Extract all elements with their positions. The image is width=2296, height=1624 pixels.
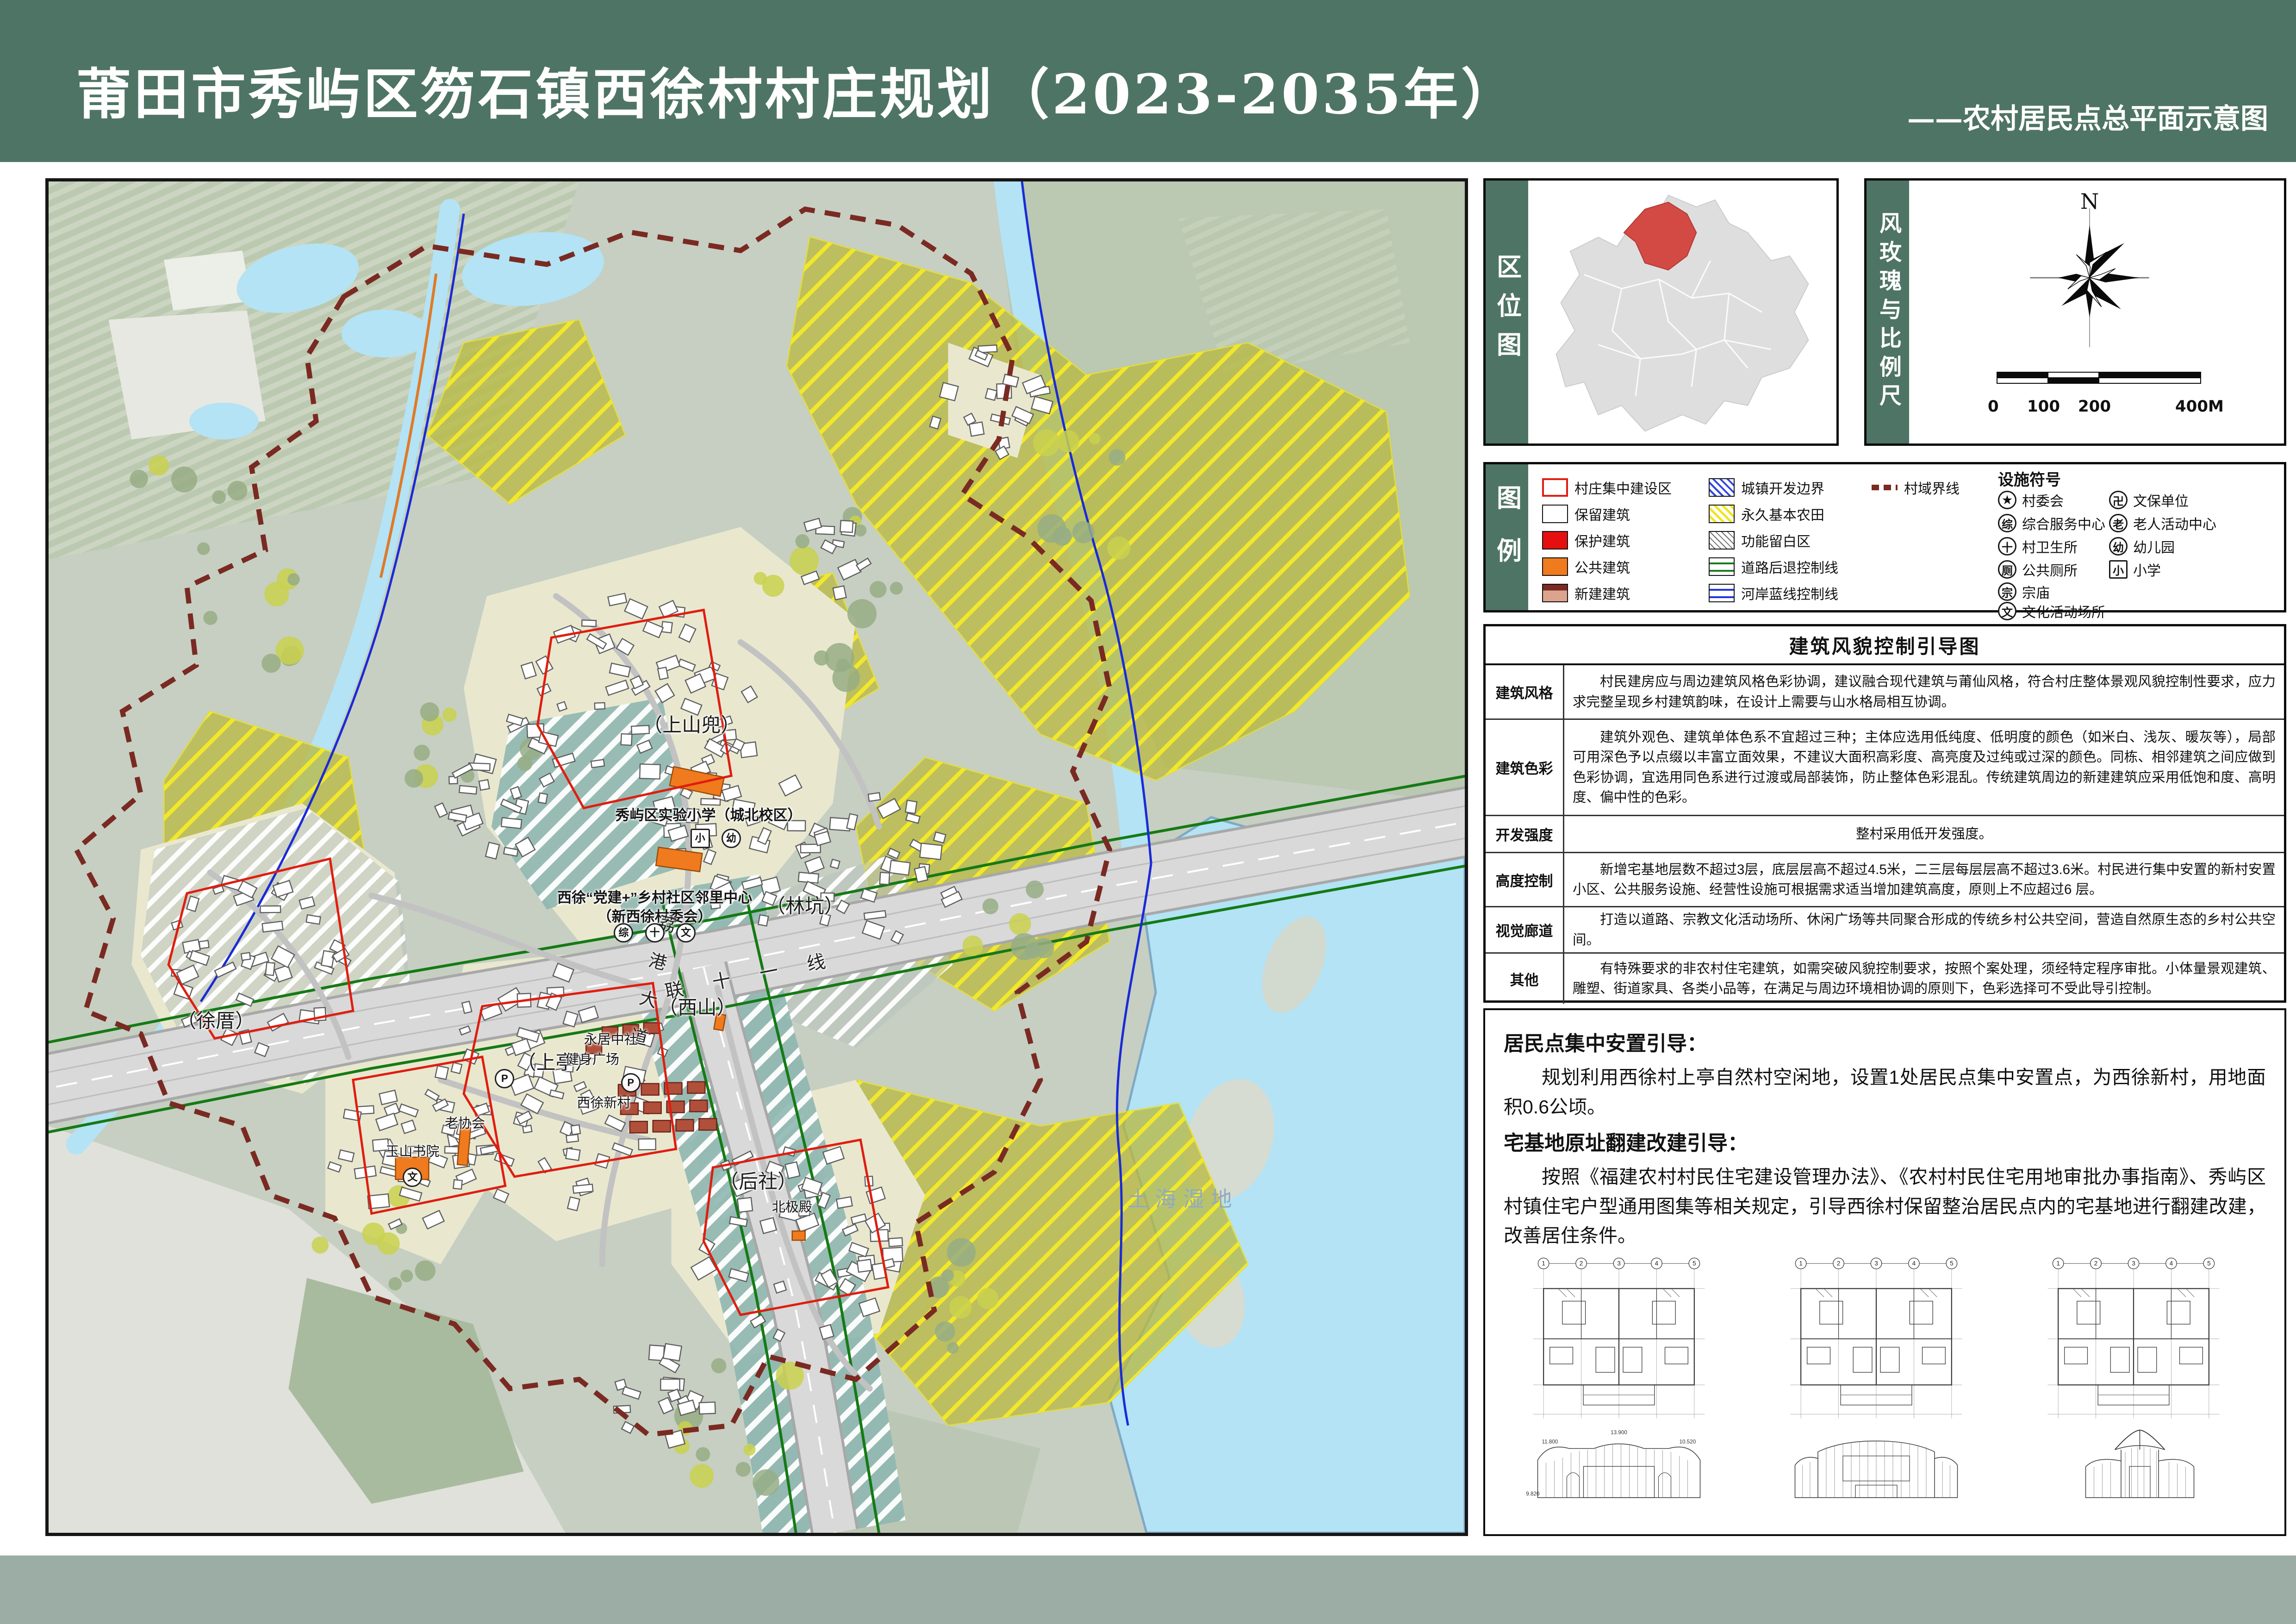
swatch-farmland [1709, 505, 1735, 523]
resettlement-guidance-title: 居民点集中安置引导： [1504, 1027, 2266, 1056]
parking-icon: P [621, 1073, 641, 1093]
legend-side-label: 图例 [1486, 464, 1528, 610]
table-row: 开发强度 整村采用低开发强度。 [1486, 816, 2284, 853]
swatch-new-building [1542, 584, 1568, 602]
service-center-icon: 综 [1998, 514, 2016, 532]
legend-item: 永久基本农田 [1709, 504, 1824, 524]
wind-rose [1997, 208, 2182, 347]
map-label-houshe: （后社） [719, 1166, 797, 1194]
facility-item: 卍文保单位 [2109, 490, 2189, 510]
facility-symbols-title: 设施符号 [1998, 467, 2061, 490]
table-row: 建筑风格 村民建房应与周边建筑风格色彩协调，建议融合现代建筑与莆仙风格，符合村庄… [1486, 665, 2284, 720]
swatch-village-boundary [1872, 485, 1898, 490]
building-style-guide-table: 建筑风貌控制引导图 建筑风格 村民建房应与周边建筑风格色彩协调，建议融合现代建筑… [1483, 624, 2286, 1003]
scale-tick-0: 0 [1988, 397, 1999, 416]
village-clinic-icon: 十 [1998, 537, 2016, 556]
legend-item: 村庄集中建设区 [1542, 477, 1672, 498]
map-label-elderly-association: 老协会 [445, 1112, 485, 1132]
map-label-xixu-new-village: 西徐新村 [577, 1092, 631, 1112]
elevation-drawing [2009, 1427, 2258, 1510]
facility-item: 老老人活动中心 [2109, 513, 2216, 533]
plan-poster: 莆田市秀屿区笏石镇西徐村村庄规划（2023-2035年） ——农村居民点总平面示… [0, 0, 2296, 1624]
culture-icon: 文 [403, 1168, 422, 1187]
house-type-drawings: 1 2 3 4 5 [1494, 1251, 2258, 1524]
location-map-panel: 区位图 [1483, 178, 1839, 446]
rebuild-guidance-title: 宅基地原址翻建改建引导： [1504, 1126, 2266, 1156]
primary-school-icon: 小 [691, 829, 710, 848]
map-canvas [49, 181, 1465, 1533]
floor-plan-drawing [1752, 1251, 2001, 1427]
facility-item: 幼幼儿园 [2109, 536, 2175, 556]
map-label-tuhai-wetland: 土海湿地 [1127, 1182, 1238, 1213]
location-map-side-label: 区位图 [1486, 181, 1528, 443]
svg-text:9.820: 9.820 [1526, 1491, 1540, 1497]
table-row: 视觉廊道 打造以道路、宗教文化活动场所、休闲广场等共同聚合形成的传统乡村公共空间… [1486, 907, 2284, 954]
service-center-icon: 综 [614, 923, 633, 943]
legend-item: 村域界线 [1872, 477, 1960, 498]
map-label-beiji-temple: 北极殿 [772, 1196, 812, 1216]
legend-item: 新建建筑 [1542, 583, 1630, 603]
swatch-reserve-area [1709, 531, 1735, 550]
scale-bar [1988, 366, 2210, 394]
rebuild-guidance-body: 按照《福建农村村民住宅建设管理办法》、《农村村民住宅用地审批办事指南》、秀屿区村… [1504, 1162, 2266, 1251]
svg-text:2: 2 [1580, 1260, 1583, 1267]
elevation-drawing: 13.900 11.800 10.520 9.820 [1494, 1427, 1743, 1510]
swatch-road-setback-line [1709, 557, 1735, 576]
village-committee-icon: ★ [1998, 491, 2016, 509]
resettlement-guidance-body: 规划利用西徐村上亭自然村空闲地，设置1处居民点集中安置点，为西徐新村，用地面积0… [1504, 1063, 2266, 1122]
ancestral-temple-icon: 宗 [1998, 582, 2016, 601]
page-subtitle: ——农村居民点总平面示意图 [1907, 96, 2268, 137]
table-row: 建筑色彩 建筑外观色、建筑单体色系不宜超过三种；主体应选用低纯度、低明度的颜色（… [1486, 720, 2284, 816]
legend-item: 城镇开发边界 [1709, 477, 1824, 498]
swatch-town-boundary [1709, 478, 1735, 497]
culture-venue-icon: 文 [1998, 602, 2016, 620]
map-label-yongju-zhongshe: 永居中社 [584, 1029, 638, 1048]
swatch-public-building [1542, 557, 1568, 576]
heritage-unit-icon: 卍 [2109, 491, 2128, 509]
svg-text:13.900: 13.900 [1611, 1430, 1627, 1436]
map-label-neighborhood-center: 西徐“党建+”乡村社区邻里中心 [557, 886, 752, 907]
footer-band [0, 1555, 2296, 1624]
scale-tick-400: 400M [2175, 397, 2224, 416]
legend-item: 公共建筑 [1542, 556, 1630, 577]
public-toilet-icon: 厕 [1998, 560, 2016, 579]
svg-text:3: 3 [1617, 1260, 1621, 1267]
facility-item: 十村卫生所 [1998, 536, 2078, 556]
swatch-construction-area [1542, 478, 1568, 497]
svg-text:5: 5 [1692, 1260, 1696, 1267]
legend-panel: 图例 村庄集中建设区 保留建筑 保护建筑 公共建筑 新建建筑 城镇开发边界 永久… [1483, 462, 2286, 612]
legend-item: 保留建筑 [1542, 504, 1630, 524]
district-map [1528, 181, 1836, 443]
facility-item: 文文化活动场所 [1998, 601, 2105, 621]
guidance-panel: 居民点集中安置引导： 规划利用西徐村上亭自然村空闲地，设置1处居民点集中安置点，… [1483, 1008, 2286, 1536]
elevation-drawing [1752, 1427, 2001, 1510]
swatch-river-blue-line [1709, 584, 1735, 602]
swatch-protected-building [1542, 531, 1568, 550]
map-label-linkeng: （林坑） [766, 890, 844, 918]
facility-item: 厕公共厕所 [1998, 559, 2078, 580]
facility-item: ★村委会 [1998, 490, 2064, 510]
legend-item: 河岸蓝线控制线 [1709, 583, 1838, 603]
kindergarten-icon: 幼 [2109, 537, 2128, 556]
page-title: 莆田市秀屿区笏石镇西徐村村庄规划（2023-2035年） [76, 50, 1518, 129]
facility-item: 综综合服务中心 [1998, 513, 2105, 533]
scale-tick-200: 200 [2078, 397, 2111, 416]
header-bar: 莆田市秀屿区笏石镇西徐村村庄规划（2023-2035年） ——农村居民点总平面示… [0, 0, 2296, 162]
house-drawing-column: 1 2 3 4 5 [1494, 1251, 1743, 1524]
legend-item: 道路后退控制线 [1709, 556, 1838, 577]
map-label-fitness-plaza: 健身广场 [566, 1049, 619, 1068]
swatch-retained-building [1542, 505, 1568, 523]
map-label-xucuo: （徐厝） [177, 1005, 255, 1033]
floor-plan-drawing [2009, 1251, 2258, 1427]
floor-plan-drawing: 1 2 3 4 5 [1494, 1251, 1743, 1427]
facility-item: 宗宗庙 [1998, 581, 2050, 602]
svg-text:11.800: 11.800 [1542, 1439, 1558, 1445]
parking-icon: P [495, 1069, 514, 1088]
main-plan-map: （上山兜） 秀屿区实验小学（城北校区） 西徐“党建+”乡村社区邻里中心 （新西徐… [45, 178, 1468, 1536]
table-row: 高度控制 新增宅基地层数不超过3层，底层层高不超过4.5米，二三层每层层高不超过… [1486, 853, 2284, 907]
facility-item: 小小学 [2109, 559, 2161, 580]
house-drawing-column [1752, 1251, 2001, 1524]
windrose-side-label: 风玫瑰与比例尺 [1867, 181, 1909, 443]
map-label-yushan-academy: 玉山书院 [386, 1141, 439, 1160]
house-drawing-column [2009, 1251, 2258, 1524]
svg-text:10.520: 10.520 [1680, 1439, 1696, 1445]
primary-school-icon: 小 [2109, 560, 2128, 579]
windrose-scale-panel: 风玫瑰与比例尺 N [1864, 178, 2286, 446]
elderly-center-icon: 老 [2109, 514, 2128, 532]
legend-item: 功能留白区 [1709, 530, 1811, 550]
table-row: 其他 有特殊要求的非农村住宅建筑，如需突破风貌控制要求，按照个案处理，须经特定程… [1486, 954, 2284, 1004]
kindergarten-icon: 幼 [722, 829, 741, 848]
culture-icon: 文 [676, 923, 696, 943]
legend-item: 保护建筑 [1542, 530, 1630, 550]
guide-table-title: 建筑风貌控制引导图 [1486, 626, 2284, 665]
svg-text:1: 1 [1542, 1260, 1545, 1267]
svg-text:4: 4 [1655, 1260, 1659, 1267]
map-label-xishan: （西山） [658, 992, 736, 1020]
scale-tick-100: 100 [2027, 397, 2060, 416]
map-label-experimental-primary-school: 秀屿区实验小学（城北校区） [615, 804, 802, 824]
clinic-icon: 十 [645, 923, 665, 943]
map-label-shangshandou: （上山兜） [643, 709, 740, 737]
